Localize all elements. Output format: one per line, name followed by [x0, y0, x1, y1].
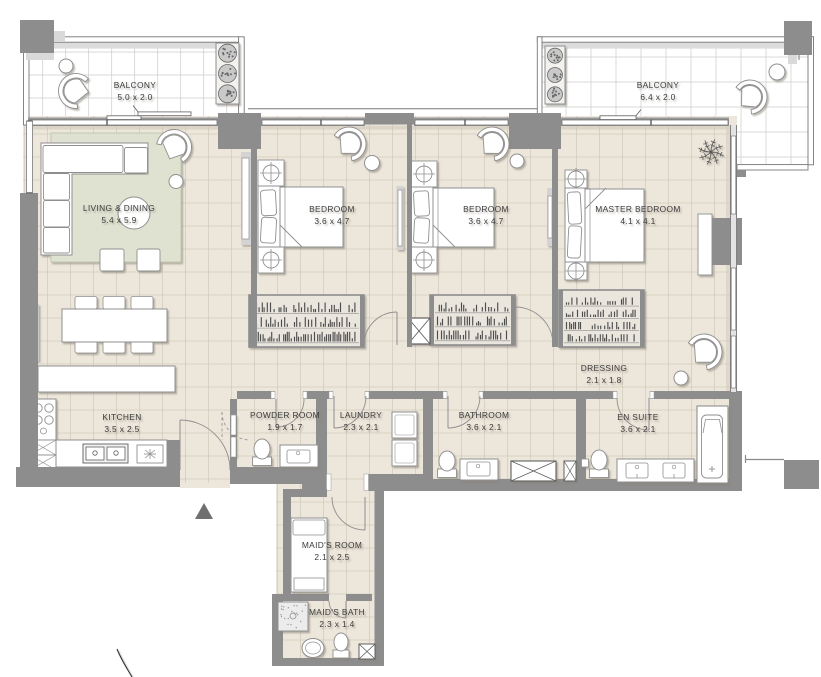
svg-text:5.0 x 2.0: 5.0 x 2.0 — [117, 92, 152, 102]
svg-text:BATHROOM: BATHROOM — [459, 410, 510, 420]
svg-text:MASTER BEDROOM: MASTER BEDROOM — [595, 204, 680, 214]
svg-text:3.6 x 2.1: 3.6 x 2.1 — [620, 424, 655, 434]
svg-text:3.5 x 2.5: 3.5 x 2.5 — [104, 424, 139, 434]
svg-text:4.1 x 4.1: 4.1 x 4.1 — [620, 216, 655, 226]
svg-text:BEDROOM: BEDROOM — [463, 204, 509, 214]
svg-text:2.3 x 1.4: 2.3 x 1.4 — [319, 619, 354, 629]
svg-text:BALCONY: BALCONY — [637, 80, 680, 90]
svg-text:DRESSING: DRESSING — [581, 363, 628, 373]
svg-text:3.6 x 4.7: 3.6 x 4.7 — [468, 216, 503, 226]
svg-text:6.4 x 2.0: 6.4 x 2.0 — [640, 92, 675, 102]
svg-text:BEDROOM: BEDROOM — [309, 204, 355, 214]
svg-text:LIVING & DINING: LIVING & DINING — [83, 203, 155, 213]
svg-text:LAUNDRY: LAUNDRY — [340, 410, 382, 420]
svg-text:MAID'S BATH: MAID'S BATH — [309, 607, 365, 617]
svg-text:1.9 x 1.7: 1.9 x 1.7 — [267, 422, 302, 432]
svg-text:BALCONY: BALCONY — [114, 80, 157, 90]
svg-text:2.1 x 1.8: 2.1 x 1.8 — [586, 375, 621, 385]
svg-text:5.4 x 5.9: 5.4 x 5.9 — [101, 215, 136, 225]
svg-text:2.3 x 2.1: 2.3 x 2.1 — [343, 422, 378, 432]
svg-text:3.6 x 4.7: 3.6 x 4.7 — [314, 216, 349, 226]
svg-text:EN SUITE: EN SUITE — [617, 412, 658, 422]
svg-text:3.6 x 2.1: 3.6 x 2.1 — [466, 422, 501, 432]
svg-text:MAID'S ROOM: MAID'S ROOM — [302, 540, 362, 550]
svg-text:POWDER ROOM: POWDER ROOM — [250, 410, 320, 420]
svg-text:KITCHEN: KITCHEN — [102, 412, 141, 422]
svg-text:2.1 x 2.5: 2.1 x 2.5 — [314, 552, 349, 562]
